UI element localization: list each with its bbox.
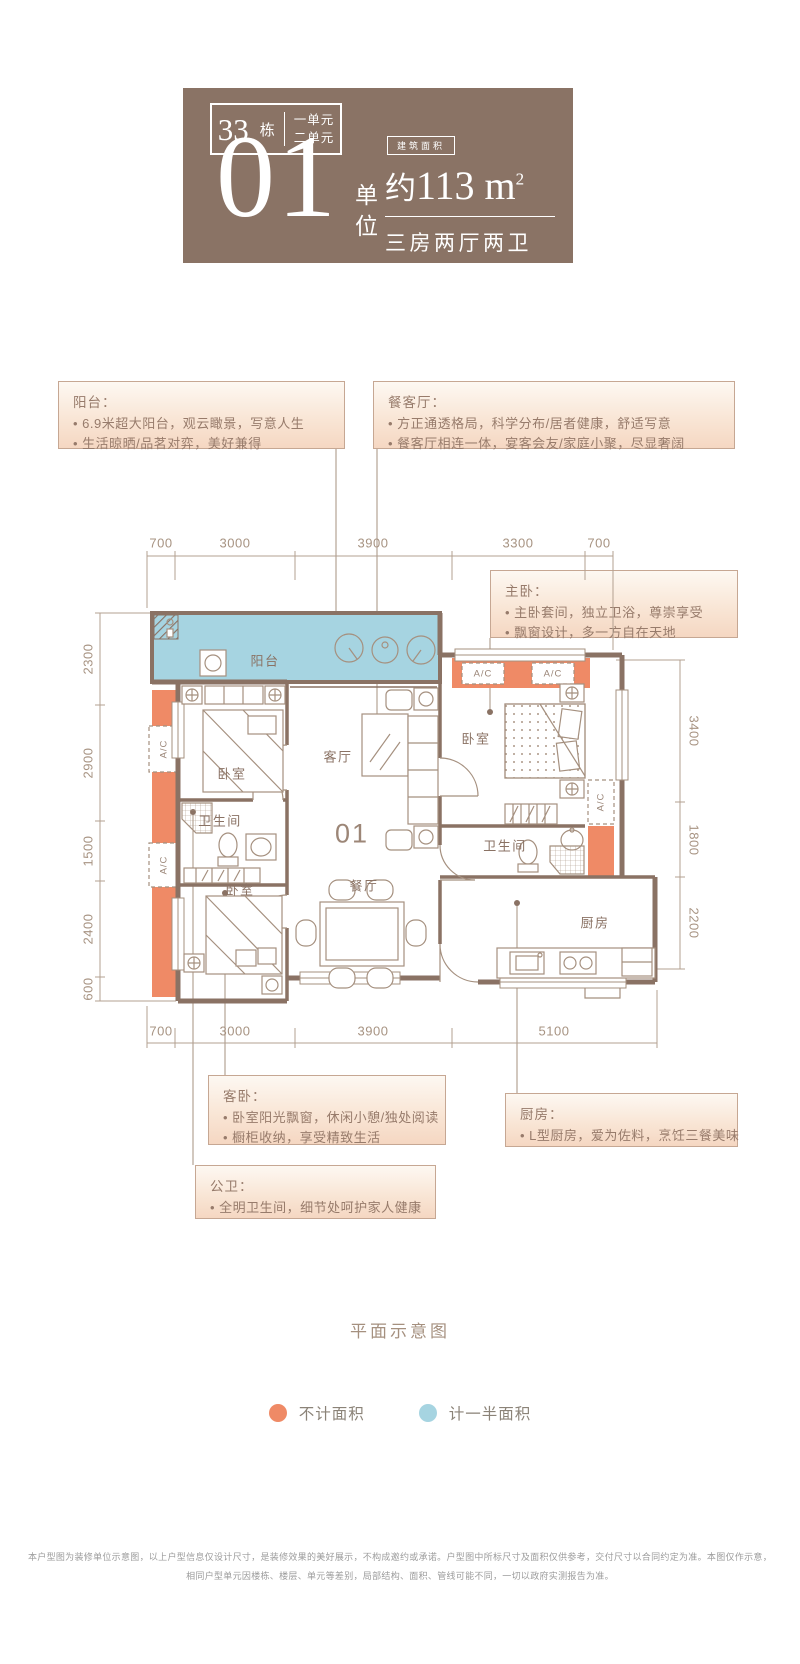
ac-label-left-2: A/C: [159, 856, 170, 875]
room-label-dining: 餐厅: [349, 876, 378, 895]
dim-left-2: 2900: [81, 748, 96, 779]
half-area-dot: [419, 1404, 437, 1422]
dim-left-3: 1500: [81, 836, 96, 867]
area-underline: [385, 216, 555, 217]
room-label-living: 客厅: [323, 747, 352, 766]
callout-kitchen-title: 厨房：: [520, 1103, 723, 1123]
callout-dining-living-bullet-1: 方正通透格局，科学分布/居者健康，舒适写意: [388, 414, 720, 434]
legend-item-excluded-area: 不计面积: [269, 1402, 365, 1424]
unit-number: 01: [216, 118, 338, 236]
header-card: 33 栋 一单元 二单元 01 单 位 建筑面积 约113 m2 三房两厅两卫: [183, 88, 573, 263]
dim-bottom-3: 3900: [358, 1024, 389, 1039]
dim-bottom-2: 3000: [220, 1024, 251, 1039]
dim-left-4: 2400: [81, 914, 96, 945]
layout-text: 三房两厅两卫: [385, 227, 557, 257]
unit-label-char-2: 位: [355, 211, 380, 242]
dim-top-4: 3300: [503, 536, 534, 551]
dim-left-5: 600: [81, 977, 96, 1000]
room-label-kitchen: 厨房: [580, 913, 609, 932]
plan-caption: 平面示意图: [0, 1317, 800, 1342]
callout-master: 主卧： 主卧套间，独立卫浴，尊崇享受 飘窗设计，多一方自在天地: [490, 570, 738, 638]
callout-master-bullet-1: 主卧套间，独立卫浴，尊崇享受: [505, 603, 723, 623]
unit-label-char-1: 单: [355, 180, 380, 211]
room-label-bedroom-master: 卧室: [461, 729, 490, 748]
dim-top-1: 700: [149, 536, 172, 551]
area-value: 约113 m2: [385, 164, 557, 208]
unit-number-label: 单 位: [355, 180, 380, 242]
room-label-bath-right: 卫生间: [483, 836, 527, 855]
dim-left-1: 2300: [81, 644, 96, 675]
disclaimer: 本户型图为装修单位示意图，以上户型信息仅设计尺寸，是装修效果的美好展示，不构成邀…: [20, 1548, 780, 1586]
callout-balcony-bullet-1: 6.9米超大阳台，观云瞰景，写意人生: [73, 414, 330, 434]
area-badge: 建筑面积: [387, 136, 455, 155]
area-prefix: 约: [385, 171, 416, 206]
dim-right-3: 2200: [687, 908, 702, 939]
callout-kitchen: 厨房： L型厨房，爱为佐料，烹饪三餐美味: [505, 1093, 738, 1147]
callout-master-title: 主卧：: [505, 580, 723, 600]
callout-public-bath-title: 公卫：: [210, 1175, 421, 1195]
ac-label-left-1: A/C: [159, 740, 170, 759]
plan-unit-number: 01: [335, 819, 369, 850]
callout-kitchen-bullet-1: L型厨房，爱为佐料，烹饪三餐美味: [520, 1126, 723, 1146]
callout-guest-bullet-2: 橱柜收纳，享受精致生活: [223, 1128, 431, 1148]
disclaimer-line-1: 本户型图为装修单位示意图，以上户型信息仅设计尺寸，是装修效果的美好展示，不构成邀…: [20, 1548, 780, 1567]
callout-balcony: 阳台： 6.9米超大阳台，观云瞰景，写意人生 生活晾晒/品茗对弈，美好兼得: [58, 381, 345, 449]
header-right: 建筑面积 约113 m2 三房两厅两卫: [385, 136, 557, 257]
callout-balcony-bullet-2: 生活晾晒/品茗对弈，美好兼得: [73, 434, 330, 454]
dim-top-3: 3900: [358, 536, 389, 551]
disclaimer-line-2: 相同户型单元因楼栋、楼层、单元等差别，局部结构、面积、管线可能不同，一切以政府实…: [20, 1567, 780, 1586]
callout-dining-living-bullet-2: 餐客厅相连一体，宴客会友/家庭小聚，尽显奢阔: [388, 434, 720, 454]
dim-top-2: 3000: [220, 536, 251, 551]
callout-guest-bullet-1: 卧室阳光飘窗，休闲小憩/独处阅读: [223, 1108, 431, 1128]
callout-public-bath-bullet-1: 全明卫生间，细节处呵护家人健康: [210, 1198, 421, 1218]
callout-balcony-title: 阳台：: [73, 391, 330, 411]
excluded-area-dot: [269, 1404, 287, 1422]
callout-master-bullet-2: 飘窗设计，多一方自在天地: [505, 623, 723, 643]
room-label-bedroom-bottom: 卧室: [225, 880, 254, 899]
callout-public-bath: 公卫： 全明卫生间，细节处呵护家人健康: [195, 1165, 436, 1219]
legend: 不计面积 计一半面积: [0, 1402, 800, 1424]
dim-top-5: 700: [587, 536, 610, 551]
legend-label-excluded: 不计面积: [299, 1402, 365, 1424]
ac-label-right: A/C: [596, 793, 607, 812]
ac-label-master-2: A/C: [544, 669, 563, 680]
area-superscript: 2: [516, 170, 525, 189]
callout-dining-living: 餐客厅： 方正通透格局，科学分布/居者健康，舒适写意 餐客厅相连一体，宴客会友/…: [373, 381, 735, 449]
dim-right-2: 1800: [687, 825, 702, 856]
callout-guest-title: 客卧：: [223, 1085, 431, 1105]
legend-item-half-area: 计一半面积: [419, 1402, 532, 1424]
legend-label-half: 计一半面积: [449, 1402, 532, 1424]
dim-bottom-4: 5100: [539, 1024, 570, 1039]
room-label-bedroom-topleft: 卧室: [217, 764, 246, 783]
callout-guest: 客卧： 卧室阳光飘窗，休闲小憩/独处阅读 橱柜收纳，享受精致生活: [208, 1075, 446, 1145]
ac-label-master-1: A/C: [474, 669, 493, 680]
dim-bottom-1: 700: [149, 1024, 172, 1039]
room-label-balcony: 阳台: [250, 651, 279, 670]
dim-right-1: 3400: [687, 716, 702, 747]
callout-dining-living-title: 餐客厅：: [388, 391, 720, 411]
floorplan-poster: 33 栋 一单元 二单元 01 单 位 建筑面积 约113 m2 三房两厅两卫 …: [0, 0, 800, 1664]
room-label-bath-left: 卫生间: [198, 811, 242, 830]
area-number: 113 m: [416, 163, 516, 208]
